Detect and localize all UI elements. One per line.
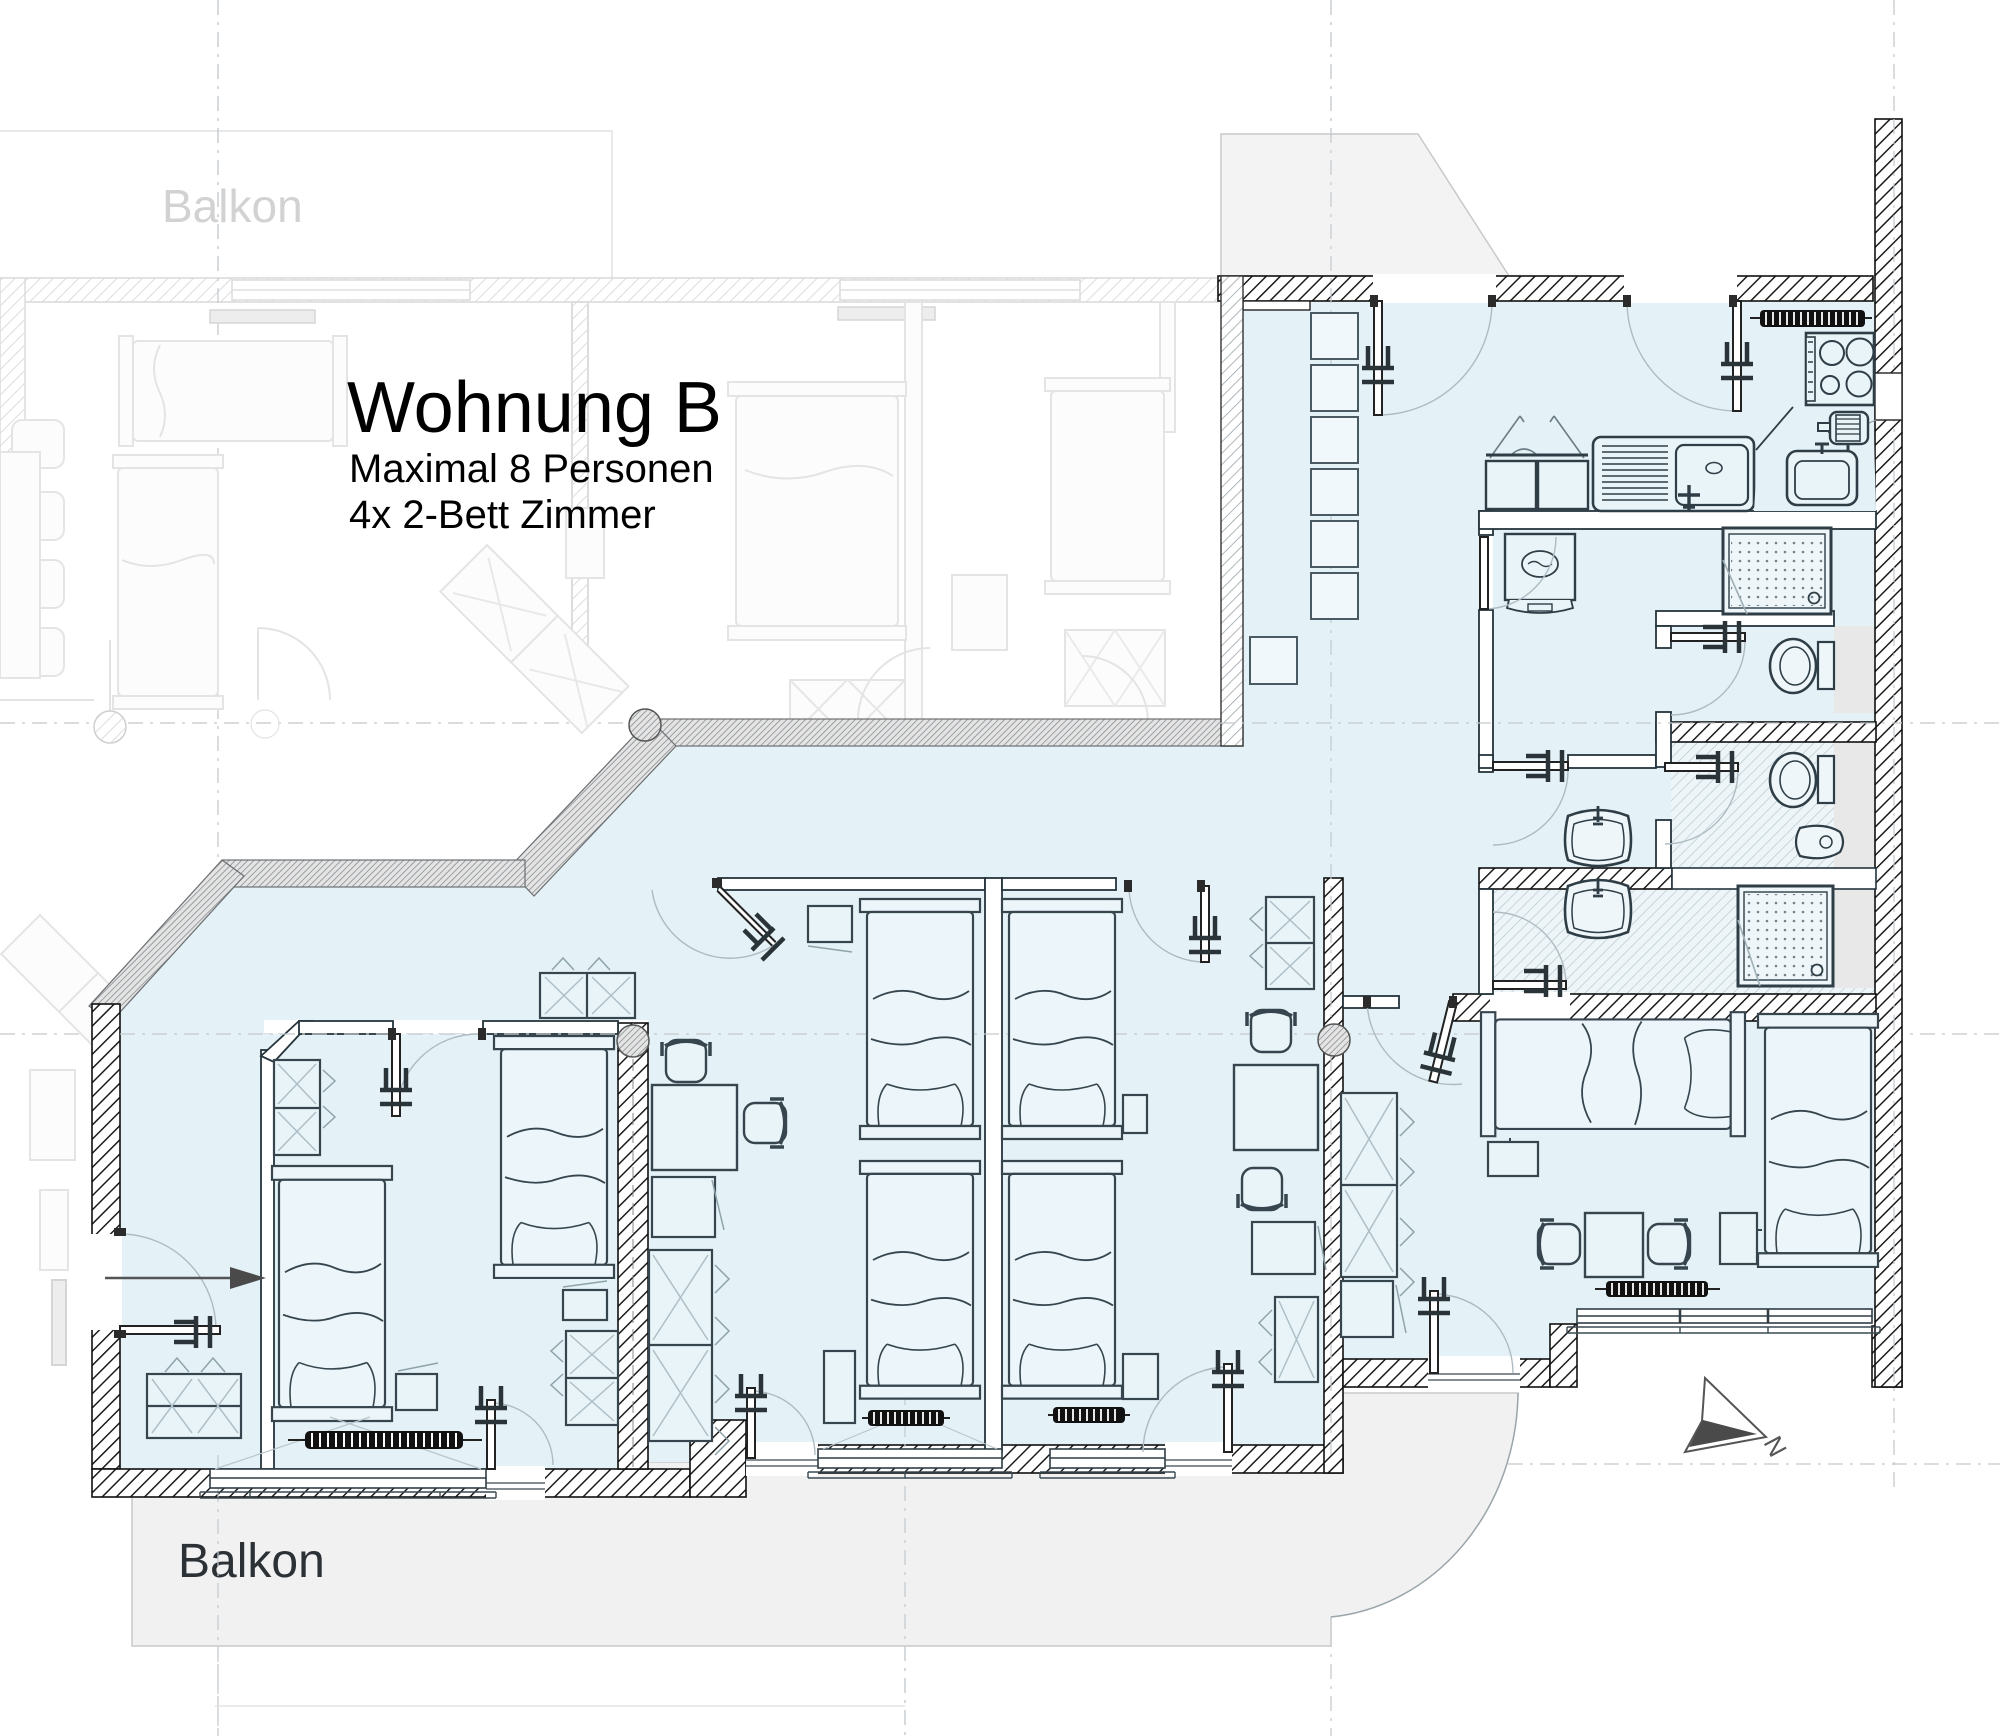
svg-text:Maximal 8 Personen: Maximal 8 Personen bbox=[349, 447, 714, 491]
svg-text:4x 2-Bett Zimmer: 4x 2-Bett Zimmer bbox=[349, 493, 656, 537]
svg-text:Balkon: Balkon bbox=[162, 180, 303, 232]
svg-text:Balkon: Balkon bbox=[178, 1535, 325, 1588]
svg-text:Wohnung B: Wohnung B bbox=[347, 368, 722, 448]
